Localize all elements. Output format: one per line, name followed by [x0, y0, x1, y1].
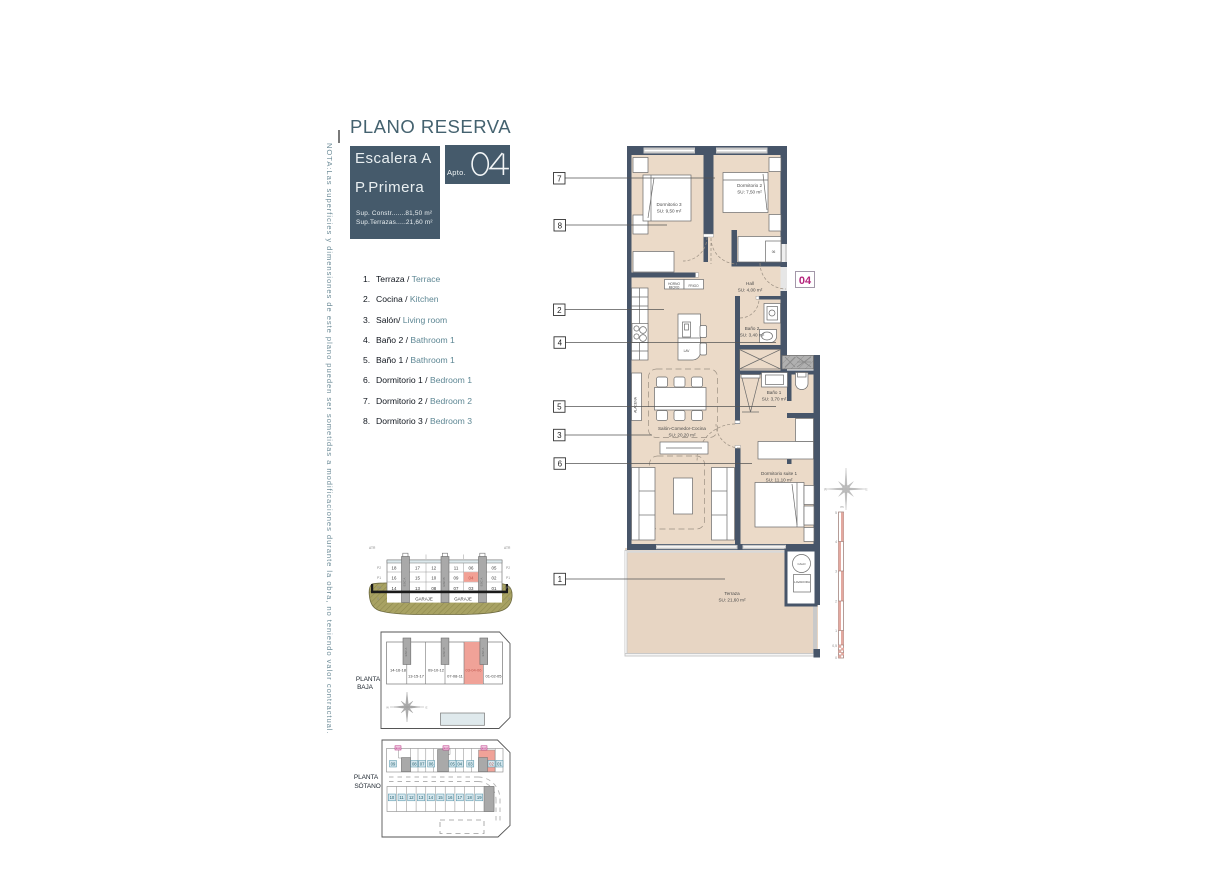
svg-text:LAV: LAV — [684, 349, 691, 353]
svg-text:13: 13 — [419, 795, 424, 800]
svg-text:03: 03 — [468, 762, 473, 767]
svg-text:asc: asc — [444, 746, 449, 750]
svg-text:PLANTA: PLANTA — [354, 774, 379, 781]
svg-text:GARAJE: GARAJE — [415, 597, 433, 602]
svg-text:5: 5 — [835, 511, 837, 515]
svg-text:2: 2 — [835, 600, 837, 604]
svg-text:CALD: CALD — [797, 562, 806, 566]
svg-text:18: 18 — [392, 566, 397, 571]
svg-text:03-04-06: 03-04-06 — [465, 668, 482, 673]
svg-text:13-15-17: 13-15-17 — [408, 674, 425, 679]
svg-text:14: 14 — [428, 795, 433, 800]
svg-text:8: 8 — [558, 221, 563, 230]
svg-text:16: 16 — [448, 795, 453, 800]
svg-text:1: 1 — [558, 575, 563, 584]
svg-text:11: 11 — [454, 566, 459, 571]
svg-text:07: 07 — [420, 762, 425, 767]
svg-text:SU: 3,70 m²: SU: 3,70 m² — [762, 397, 787, 402]
svg-text:17: 17 — [415, 566, 420, 571]
svg-text:P2: P2 — [506, 566, 510, 570]
svg-text:Hall: Hall — [746, 281, 754, 286]
svg-text:04: 04 — [457, 762, 462, 767]
svg-text:3: 3 — [835, 570, 837, 574]
svg-text:16: 16 — [392, 576, 397, 581]
svg-text:4: 4 — [835, 540, 837, 544]
svg-text:09: 09 — [454, 576, 459, 581]
svg-text:ESC A: ESC A — [480, 578, 484, 587]
svg-text:06: 06 — [772, 250, 776, 254]
svg-text:07: 07 — [454, 586, 459, 591]
svg-text:15: 15 — [438, 795, 443, 800]
svg-text:W: W — [824, 488, 828, 492]
svg-text:10: 10 — [390, 795, 395, 800]
svg-text:Baño 1: Baño 1 — [767, 390, 782, 395]
svg-text:17: 17 — [457, 795, 462, 800]
svg-text:ESC A: ESC A — [481, 648, 485, 657]
svg-text:SU: 7,50 m²: SU: 7,50 m² — [737, 190, 762, 195]
svg-text:07-08-11: 07-08-11 — [447, 674, 463, 679]
svg-text:18: 18 — [467, 795, 472, 800]
svg-text:SU: 9,50 m²: SU: 9,50 m² — [657, 209, 682, 214]
svg-text:01-02-05: 01-02-05 — [485, 674, 502, 679]
svg-text:6: 6 — [558, 460, 563, 469]
svg-text:W: W — [386, 706, 389, 710]
svg-text:01: 01 — [497, 762, 502, 767]
svg-text:1: 1 — [835, 629, 837, 633]
svg-text:asc: asc — [396, 746, 401, 750]
svg-text:02: 02 — [492, 576, 497, 581]
svg-text:05: 05 — [492, 566, 497, 571]
svg-text:P1: P1 — [377, 576, 381, 580]
svg-text:m: m — [841, 505, 844, 509]
svg-text:GARAJE: GARAJE — [454, 597, 472, 602]
svg-text:asc: asc — [482, 746, 487, 750]
svg-text:14-16-18: 14-16-18 — [390, 668, 407, 673]
svg-text:SÓTANO: SÓTANO — [354, 781, 380, 790]
svg-text:E: E — [425, 706, 427, 710]
svg-text:04: 04 — [799, 275, 812, 287]
svg-text:7: 7 — [557, 174, 562, 183]
svg-text:E: E — [865, 488, 868, 492]
svg-text:SU: 21,60 m²: SU: 21,60 m² — [718, 598, 746, 603]
svg-text:06: 06 — [469, 566, 474, 571]
svg-text:ALACENA: ALACENA — [634, 396, 638, 413]
svg-text:4: 4 — [558, 339, 563, 348]
svg-text:ESC B: ESC B — [442, 577, 446, 586]
svg-text:09-10-12: 09-10-12 — [428, 668, 445, 673]
svg-text:15: 15 — [415, 576, 420, 581]
svg-text:ESC B: ESC B — [442, 647, 446, 656]
svg-text:08: 08 — [431, 586, 436, 591]
svg-text:ESC A: ESC A — [403, 578, 407, 587]
svg-text:2: 2 — [557, 306, 562, 315]
svg-text:09: 09 — [391, 762, 396, 767]
svg-text:Dormitorio 2: Dormitorio 2 — [737, 183, 762, 188]
svg-text:Terraza: Terraza — [724, 591, 740, 596]
svg-text:5: 5 — [557, 403, 562, 412]
svg-text:01: 01 — [492, 586, 497, 591]
svg-text:MICRO: MICRO — [669, 286, 680, 290]
svg-text:12: 12 — [409, 795, 414, 800]
svg-text:08: 08 — [412, 762, 417, 767]
svg-text:ATR: ATR — [369, 546, 376, 550]
svg-text:SU: 3,40 m²: SU: 3,40 m² — [740, 333, 765, 338]
svg-text:04: 04 — [469, 576, 474, 581]
svg-text:Baño 2: Baño 2 — [745, 326, 760, 331]
svg-text:SU: 11,10 m²: SU: 11,10 m² — [766, 478, 793, 483]
svg-text:ESC A: ESC A — [404, 648, 408, 657]
svg-text:11: 11 — [399, 795, 404, 800]
svg-text:PLANTA: PLANTA — [356, 676, 381, 683]
svg-text:P1: P1 — [506, 576, 510, 580]
svg-text:12: 12 — [431, 566, 436, 571]
svg-text:13: 13 — [415, 586, 420, 591]
svg-text:P2: P2 — [377, 566, 381, 570]
svg-text:03: 03 — [469, 586, 474, 591]
svg-text:0: 0 — [835, 656, 837, 660]
svg-text:BAJA: BAJA — [357, 684, 374, 691]
svg-text:Dormitorio suite 1: Dormitorio suite 1 — [761, 471, 797, 476]
svg-text:02: 02 — [489, 762, 494, 767]
svg-text:14: 14 — [392, 586, 397, 591]
svg-text:19: 19 — [477, 795, 482, 800]
svg-text:SU: 4,00 m²: SU: 4,00 m² — [738, 288, 763, 293]
svg-text:10: 10 — [431, 576, 436, 581]
svg-text:3: 3 — [557, 431, 562, 440]
svg-text:Dormitorio 3: Dormitorio 3 — [656, 202, 681, 207]
svg-text:LAVADORA: LAVADORA — [794, 580, 810, 584]
svg-text:0,5: 0,5 — [832, 644, 837, 648]
svg-text:ATR: ATR — [504, 546, 511, 550]
svg-text:05: 05 — [450, 762, 455, 767]
svg-text:Salón-Comedor-Cocina: Salón-Comedor-Cocina — [658, 426, 706, 431]
svg-text:SU: 20,20 m²: SU: 20,20 m² — [668, 433, 696, 438]
svg-text:06: 06 — [429, 762, 434, 767]
svg-text:FRIGO: FRIGO — [688, 284, 699, 288]
